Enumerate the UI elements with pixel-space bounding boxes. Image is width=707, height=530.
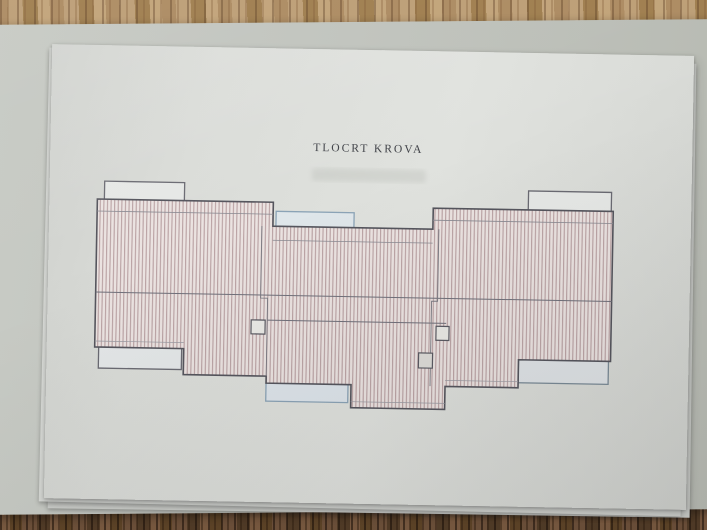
ghost-print-smudge: [312, 168, 426, 183]
roof-plan-drawing: TLOCRT KROVA: [44, 44, 694, 510]
roof-access-hatch: [418, 353, 432, 368]
chimney-right: [436, 326, 449, 340]
drawing-title: TLOCRT KROVA: [313, 142, 423, 156]
photo-scene: TLOCRT KROVA: [0, 0, 707, 530]
chimney-left: [251, 320, 265, 334]
drawing-sheet: TLOCRT KROVA: [44, 44, 694, 510]
